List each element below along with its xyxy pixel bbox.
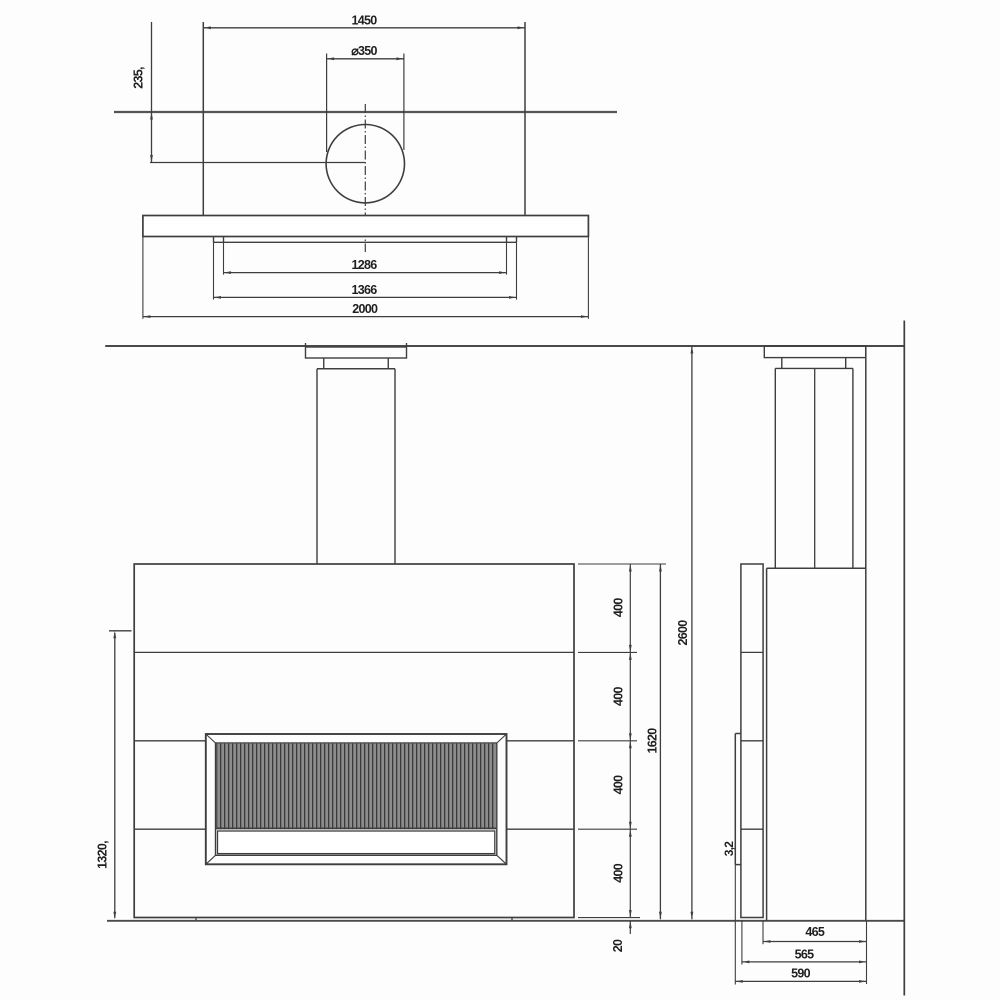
svg-text:590: 590 bbox=[791, 967, 811, 981]
svg-text:1366: 1366 bbox=[351, 283, 377, 297]
svg-text:400: 400 bbox=[612, 598, 626, 618]
svg-text:1620: 1620 bbox=[646, 728, 660, 754]
svg-text:2000: 2000 bbox=[352, 302, 378, 316]
svg-text:1286: 1286 bbox=[351, 258, 377, 272]
svg-text:1320,: 1320, bbox=[96, 841, 110, 869]
svg-text:235,: 235, bbox=[132, 67, 146, 89]
svg-text:565: 565 bbox=[795, 947, 815, 961]
svg-text:20: 20 bbox=[611, 939, 625, 952]
svg-text:400: 400 bbox=[612, 863, 626, 883]
svg-text:3,2: 3,2 bbox=[722, 841, 736, 857]
svg-text:400: 400 bbox=[612, 775, 626, 795]
svg-text:1450: 1450 bbox=[351, 13, 377, 27]
svg-text:⌀350: ⌀350 bbox=[351, 44, 377, 58]
svg-text:2600: 2600 bbox=[676, 620, 690, 646]
svg-text:465: 465 bbox=[805, 925, 825, 939]
svg-text:400: 400 bbox=[612, 686, 626, 706]
